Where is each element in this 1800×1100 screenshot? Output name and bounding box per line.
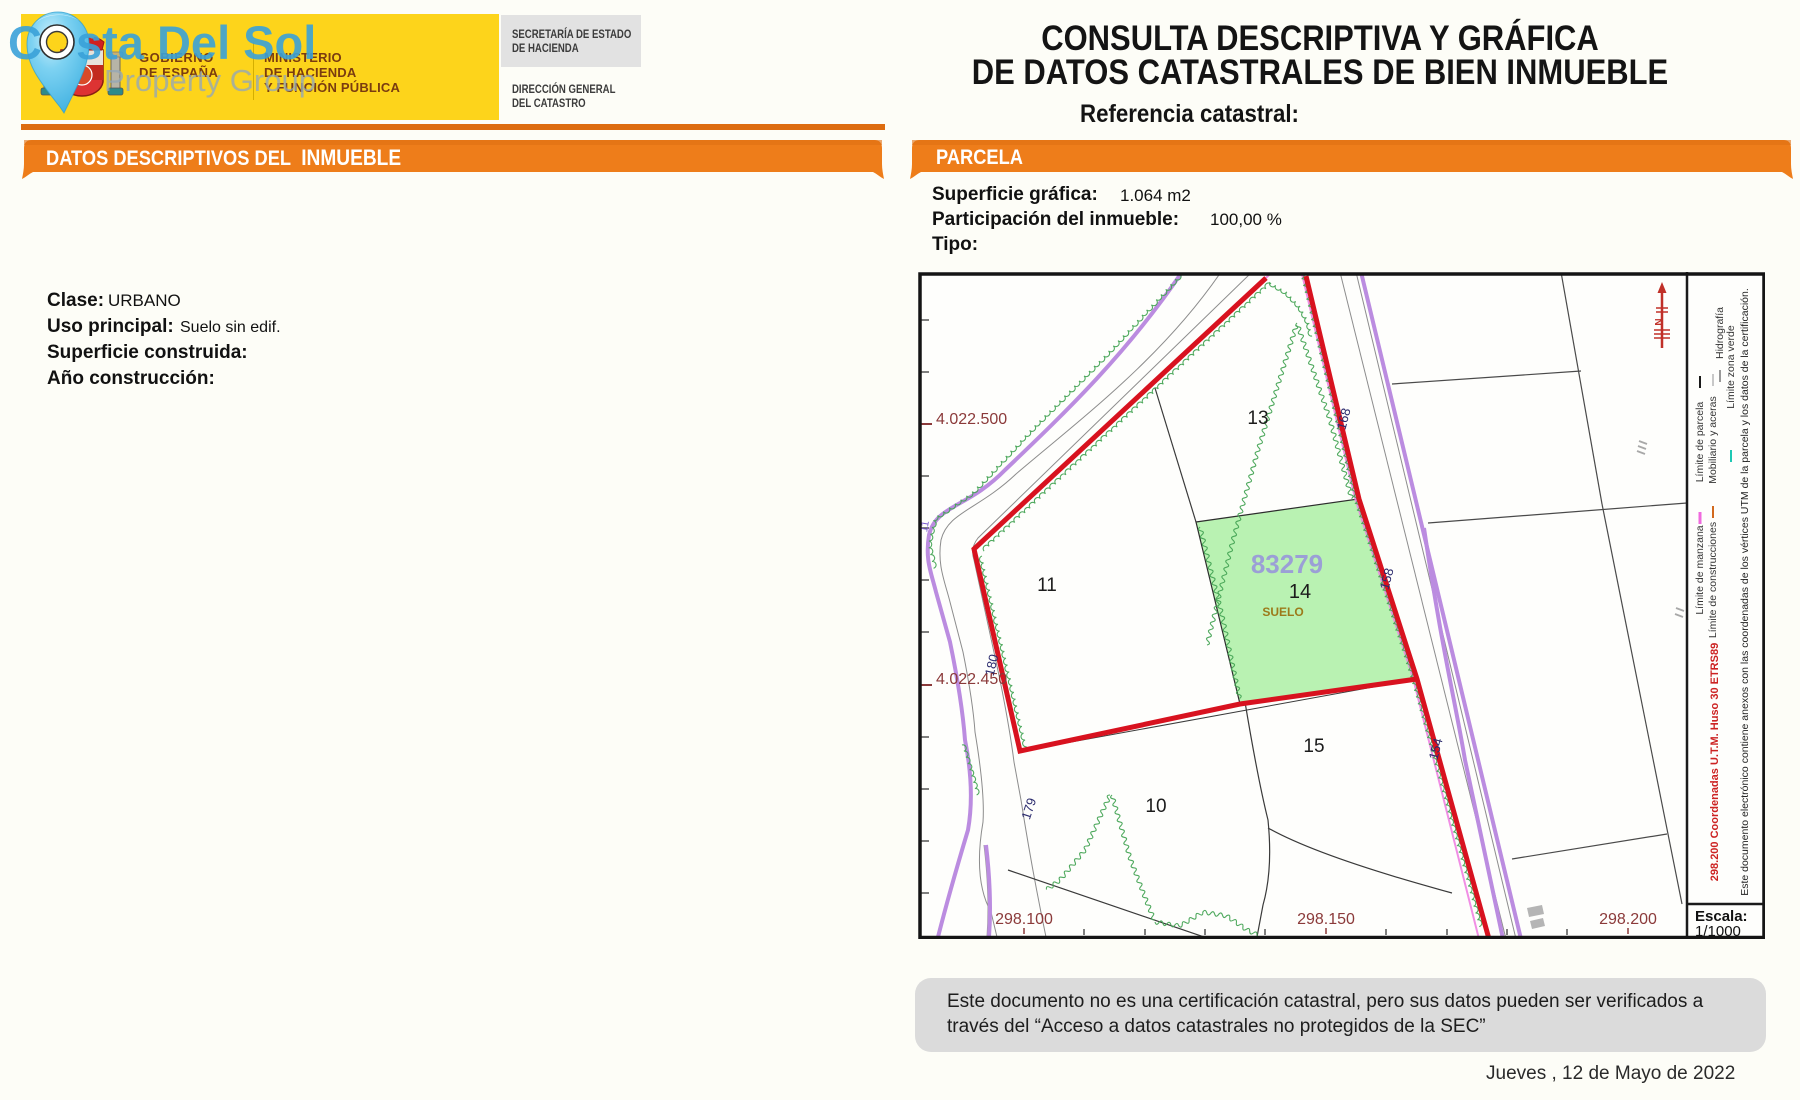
svg-text:Mobiliario y aceras: Mobiliario y aceras: [1707, 396, 1719, 484]
svg-text:298.200: 298.200: [1599, 911, 1657, 928]
svg-text:Límite de construcciones: Límite de construcciones: [1707, 522, 1719, 638]
svg-text:11: 11: [1037, 575, 1057, 596]
svg-text:4.022.500: 4.022.500: [936, 411, 1007, 428]
svg-text:83279: 83279: [1251, 549, 1323, 579]
svg-text:SUELO: SUELO: [1262, 605, 1303, 619]
svg-text:14: 14: [1289, 581, 1311, 603]
svg-text:N: N: [1654, 318, 1665, 325]
svg-text:Límite de manzana: Límite de manzana: [1694, 525, 1706, 614]
svg-text:Límite zona verde: Límite zona verde: [1725, 325, 1737, 409]
svg-text:Este documento electrónico con: Este documento electrónico contiene anex…: [1739, 288, 1751, 896]
svg-text:10: 10: [1145, 796, 1166, 817]
svg-text:298.100: 298.100: [995, 911, 1053, 928]
svg-text:15: 15: [1303, 736, 1324, 757]
svg-text:Límite de parcela: Límite de parcela: [1694, 402, 1706, 483]
svg-text:298.200 Coordenadas U.T.M. Hus: 298.200 Coordenadas U.T.M. Huso 30 ETRS8…: [1709, 643, 1721, 881]
svg-text:13: 13: [1247, 408, 1268, 429]
svg-text:298.150: 298.150: [1297, 911, 1355, 928]
